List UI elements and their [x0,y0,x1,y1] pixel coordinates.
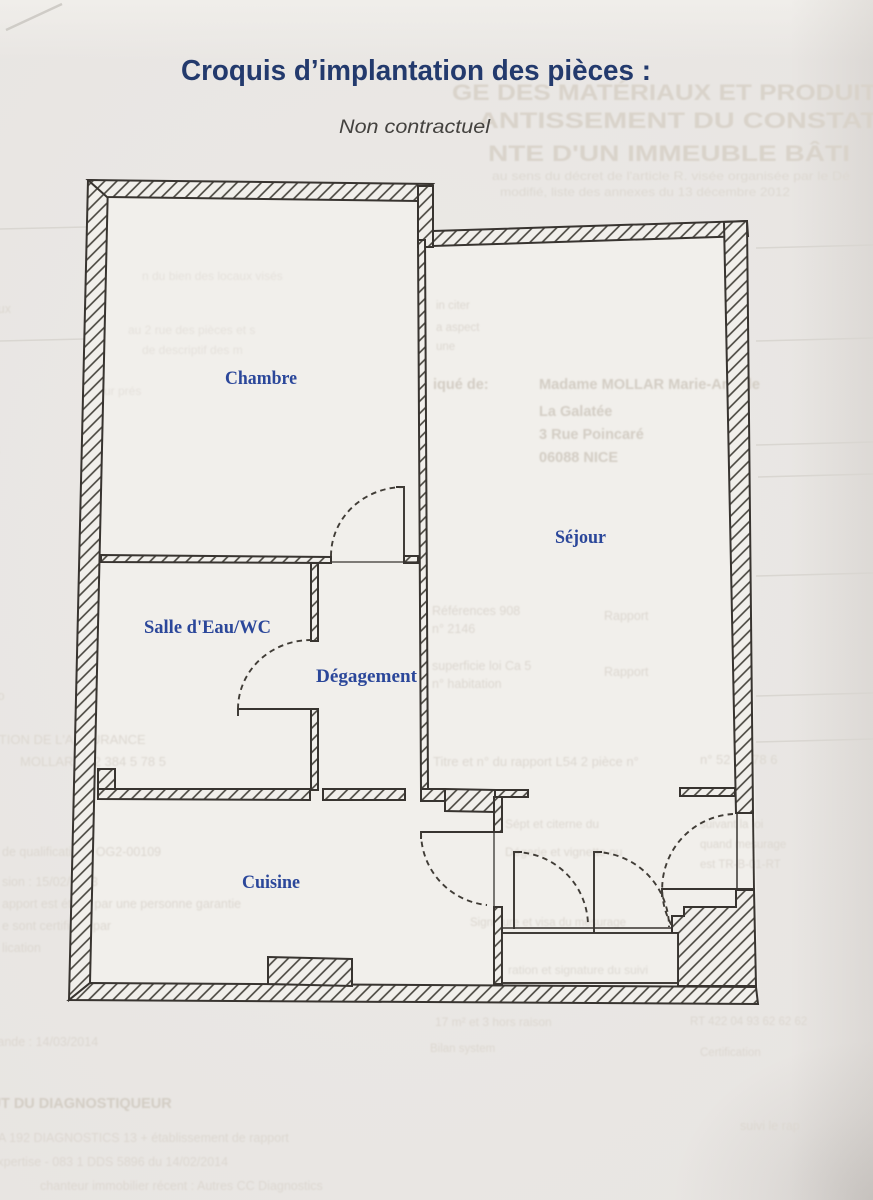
svg-text:e sont certifiées par: e sont certifiées par [2,919,111,933]
svg-text:Titre et n° du rapport L54 2 p: Titre et n° du rapport L54 2 pièce n° [433,754,639,769]
svg-text:de descriptif des m: de descriptif des m [142,343,243,357]
svg-text:La Galatée: La Galatée [539,404,612,420]
svg-text:in citer: in citer [436,300,470,312]
svg-text:Rapport: Rapport [604,609,649,623]
svg-text:BUT DU DIAGNOSTIQUEUR: BUT DU DIAGNOSTIQUEUR [0,1096,172,1112]
svg-text:17 m² et 3 hors raison: 17 m² et 3 hors raison [435,1015,552,1029]
svg-text:e 3 aux: e 3 aux [0,302,12,316]
svg-text:NTE D'UN IMMEUBLE BÂTI: NTE D'UN IMMEUBLE BÂTI [488,141,850,166]
svg-text:Dégagement: Dégagement [316,666,418,687]
svg-text:au sens du décret de l'article: au sens du décret de l'article R. visée … [492,169,850,183]
svg-text:Bilan system: Bilan system [430,1043,495,1055]
svg-text:Non contractuel: Non contractuel [339,116,491,138]
svg-text:Chambre: Chambre [225,368,297,389]
svg-text:chanteur immobilier récent : A: chanteur immobilier récent : Autres CC D… [40,1179,323,1193]
svg-text:au 2 rue des pièces et s: au 2 rue des pièces et s [128,323,255,337]
svg-text:n du bien des locaux visés: n du bien des locaux visés [142,269,283,283]
svg-text:CUTION DE L'ASSURANCE: CUTION DE L'ASSURANCE [0,732,146,747]
svg-text:Cuisine: Cuisine [242,872,300,893]
svg-text:lication: lication [2,941,41,955]
svg-text:modifié, liste des annexes du: modifié, liste des annexes du 13 décembr… [500,185,790,199]
svg-text:iqué de:: iqué de: [433,377,489,393]
svg-text:emande : 14/03/2014: emande : 14/03/2014 [0,1035,98,1049]
svg-text:RT 422 04 93 62 62 62: RT 422 04 93 62 62 62 [690,1016,807,1028]
svg-text:quand mesurage: quand mesurage [700,839,786,851]
svg-text:Références 908: Références 908 [432,604,520,618]
svg-text:06088 NICE: 06088 NICE [539,450,618,466]
svg-text:Salle d'Eau/WC: Salle d'Eau/WC [144,617,271,638]
svg-text:e expertise - 083 1 DDS 5896 d: e expertise - 083 1 DDS 5896 du 14/02/20… [0,1155,228,1169]
svg-text:Rapport: Rapport [604,665,649,679]
svg-text:ration et signature du suivi: ration et signature du suivi [508,963,648,977]
svg-text:Croquis d’implantation des piè: Croquis d’implantation des pièces : [181,55,651,87]
svg-text:est TR-B-01-RT: est TR-B-01-RT [700,859,781,871]
svg-text:a aspect: a aspect [436,322,480,334]
svg-text:superficie loi Ca 5: superficie loi Ca 5 [432,659,531,673]
svg-text:3 Rue Poincaré: 3 Rue Poincaré [539,427,644,443]
svg-text:apport est établi par une pers: apport est établi par une personne garan… [2,897,241,911]
svg-text:sur prés: sur prés [98,384,141,398]
svg-text:Certification: Certification [700,1047,761,1059]
svg-text:une: une [436,341,455,353]
svg-text:n° habitation: n° habitation [432,677,502,691]
svg-text:Séjour: Séjour [555,527,607,548]
svg-text:suivi le rap: suivi le rap [740,1119,800,1133]
svg-text:Sépt et citerne du: Sépt et citerne du [505,817,599,831]
svg-text:ANTISSEMENT DU CONSTAT: ANTISSEMENT DU CONSTAT [478,108,873,133]
svg-text:n° 2146: n° 2146 [432,622,475,636]
svg-text:NRA 192 DIAGNOSTICS 13 + établ: NRA 192 DIAGNOSTICS 13 + établissement d… [0,1131,289,1145]
svg-text:appelés Mo: appelés Mo [0,689,5,703]
